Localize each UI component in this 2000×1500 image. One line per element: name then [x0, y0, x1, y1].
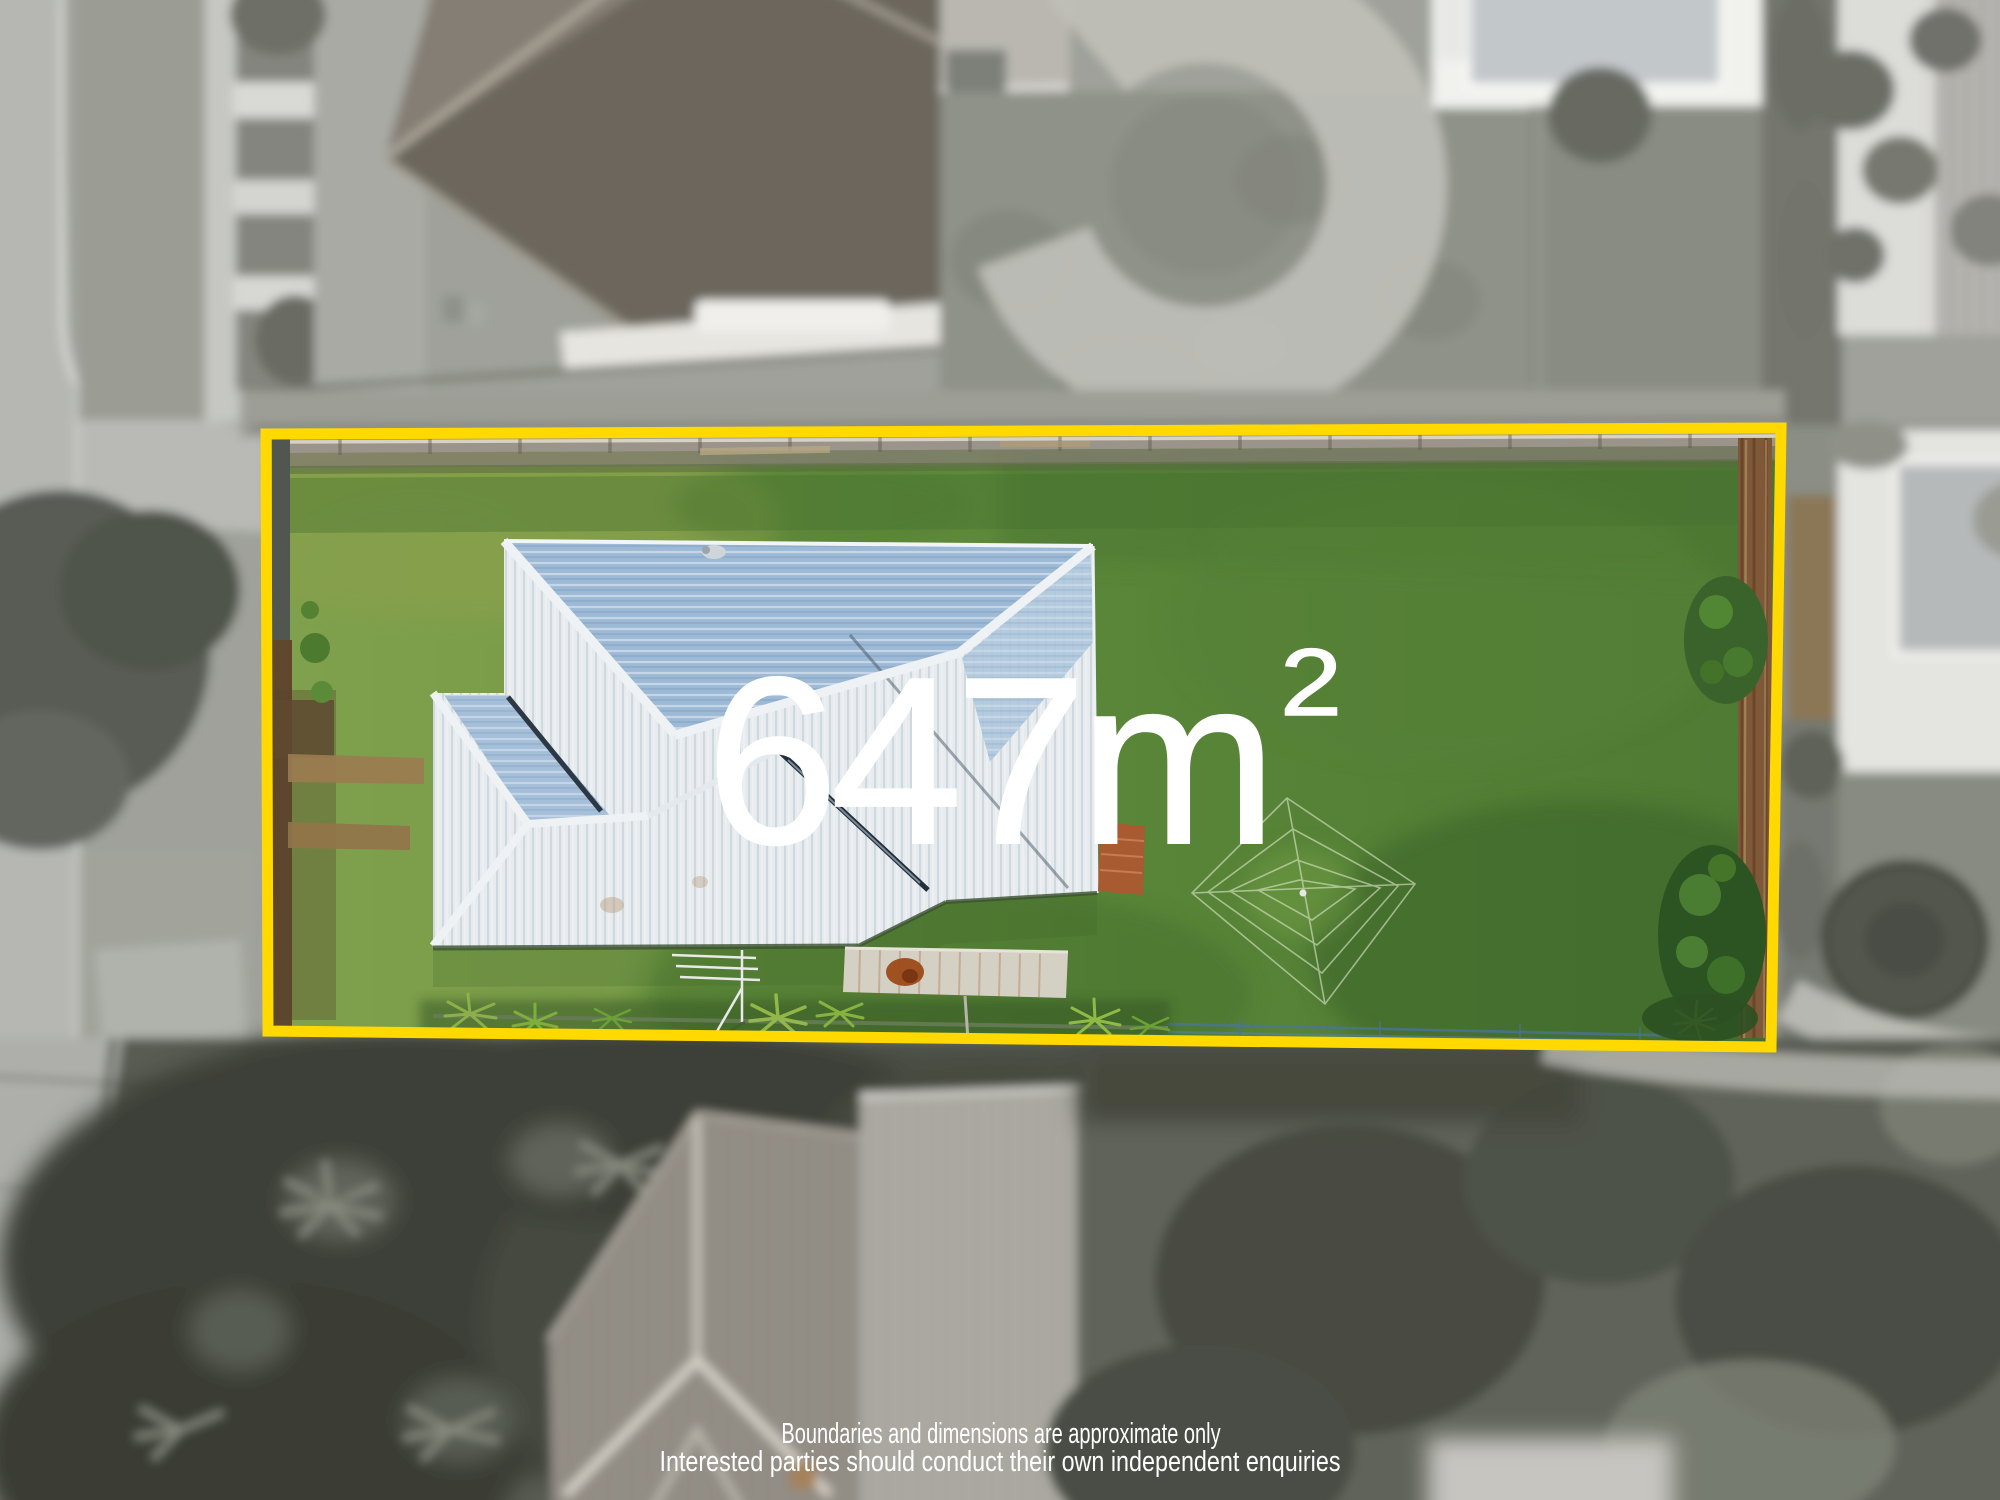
- svg-text:Interested parties should cond: Interested parties should conduct their …: [659, 1445, 1340, 1478]
- svg-text:647m: 647m: [706, 629, 1269, 894]
- svg-text:2: 2: [1280, 630, 1342, 736]
